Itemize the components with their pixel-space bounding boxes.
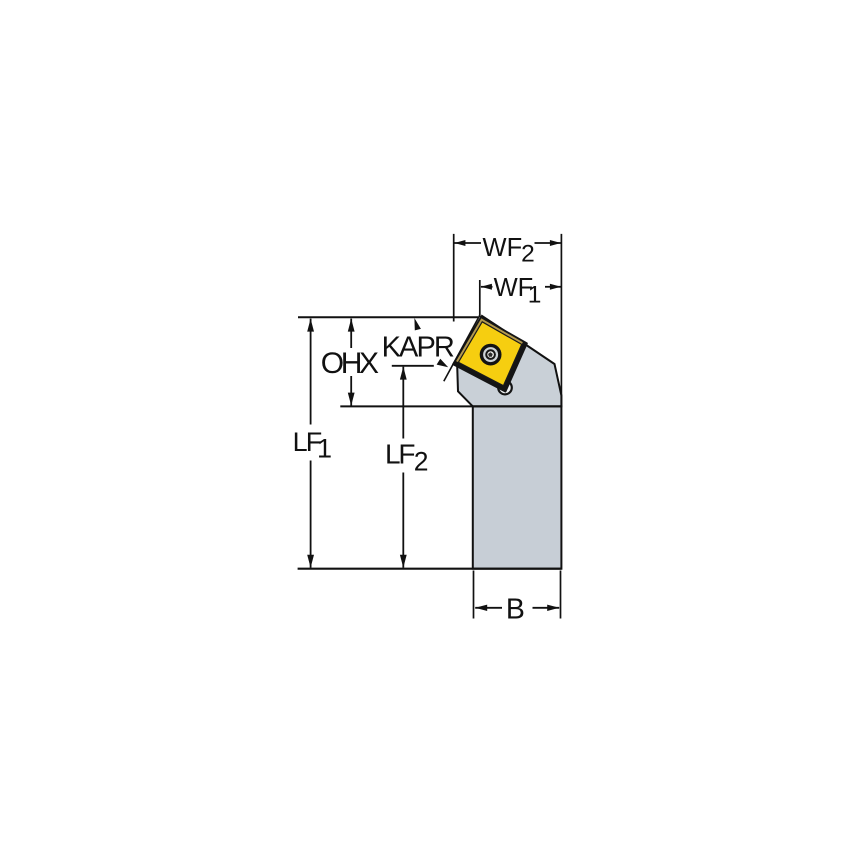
- svg-text:KAPR: KAPR: [382, 331, 454, 363]
- svg-text:OHX: OHX: [321, 347, 379, 380]
- svg-text:B: B: [506, 594, 525, 626]
